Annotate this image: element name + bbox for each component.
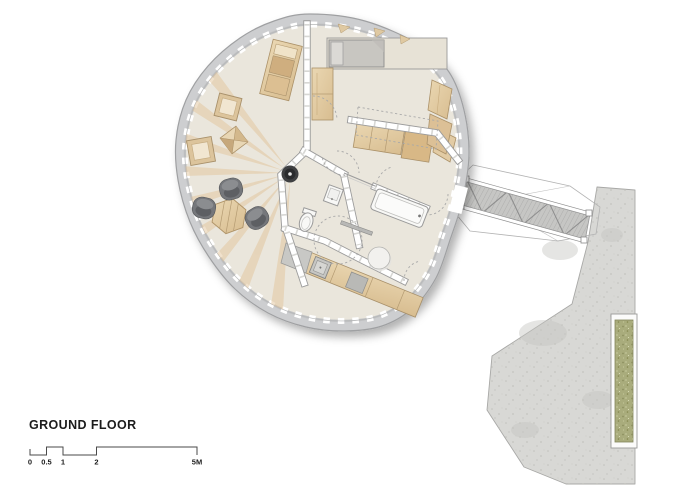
bridge-walkway — [451, 165, 600, 243]
scale-labels: 0 0.5 1 2 5M — [28, 458, 202, 467]
cube-stool-b — [187, 137, 216, 166]
scale-label-5m: 5M — [192, 458, 202, 467]
scale-label-0: 0 — [28, 458, 32, 467]
pillow — [331, 42, 343, 65]
floor-plan-page: GROUND FLOOR 0 0.5 1 2 5M — [0, 0, 700, 495]
scale-label-05: 0.5 — [41, 458, 51, 467]
bed — [327, 38, 447, 69]
scale-label-1: 1 — [61, 458, 65, 467]
wardrobe — [312, 68, 333, 120]
page-title: GROUND FLOOR — [29, 418, 137, 432]
scale-label-2: 2 — [94, 458, 98, 467]
scale-bar — [30, 447, 197, 455]
planter-strip — [611, 314, 637, 448]
floor-plan-canvas: GROUND FLOOR 0 0.5 1 2 5M — [0, 0, 700, 495]
title-block: GROUND FLOOR 0 0.5 1 2 5M — [28, 418, 202, 467]
wood-stove — [282, 166, 299, 183]
cube-stool-a — [214, 93, 242, 121]
